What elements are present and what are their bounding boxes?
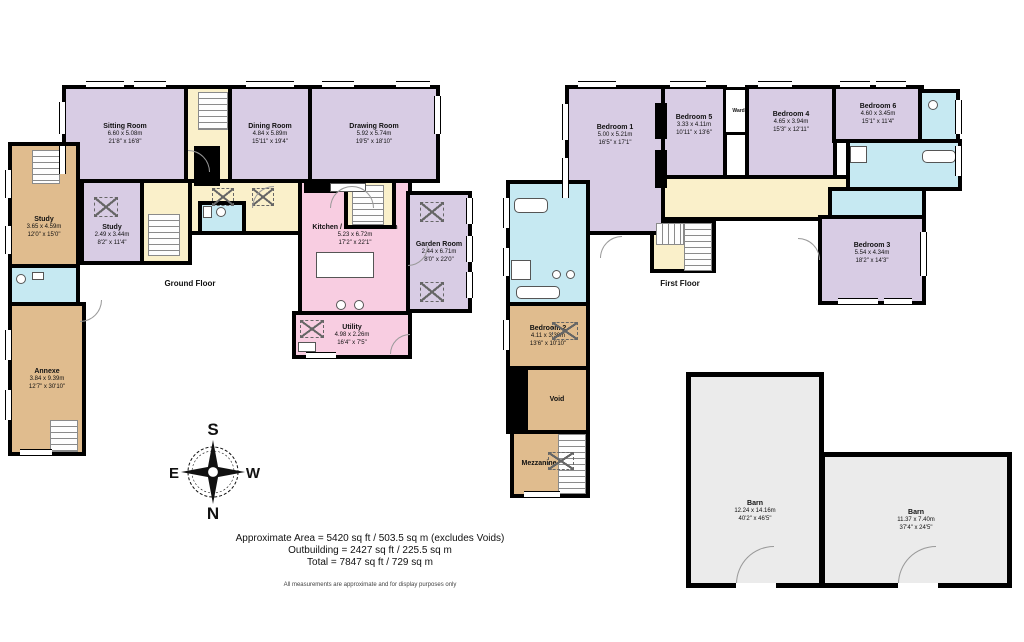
sink-fixture: [566, 270, 575, 279]
room-dimensions-metric: 12.24 x 14.16m: [734, 508, 775, 516]
door-arc: [600, 236, 622, 258]
room-dimensions-metric: 5.54 x 4.34m: [855, 250, 890, 258]
room-dimensions-metric: 11.37 x 7.40m: [897, 517, 935, 525]
chimney-block: [655, 103, 667, 139]
toilet-fixture: [216, 207, 226, 217]
room-dimensions-metric: 4.84 x 5.89m: [253, 131, 288, 139]
room-label: Barn: [747, 499, 763, 508]
room-dimensions-imperial: 12'0" x 15'0": [28, 232, 61, 240]
disclaimer: All measurements are approximate and for…: [225, 582, 515, 588]
room-bedroom-5: Bedroom 5 3.33 x 4.11m 10'11" x 13'6": [661, 85, 727, 179]
room-dimensions-metric: 6.60 x 5.08m: [108, 131, 143, 139]
stairs: [684, 223, 712, 271]
barn-door-gap: [898, 583, 938, 590]
window: [246, 81, 294, 88]
rooflight-marker: [94, 197, 118, 217]
window: [59, 146, 66, 174]
room-dimensions-metric: 3.33 x 4.11m: [677, 122, 711, 130]
window: [466, 198, 473, 224]
window: [955, 146, 962, 176]
room-dimensions-imperial: 15'11" x 19'4": [252, 139, 288, 147]
sink-fixture: [354, 300, 364, 310]
label-ground-floor: Ground Floor: [130, 279, 250, 288]
toilet-fixture: [928, 100, 938, 110]
sink-fixture: [298, 342, 316, 352]
compass-east-label: E: [169, 465, 179, 482]
window: [578, 81, 616, 88]
room-label: Sitting Room: [103, 122, 147, 131]
sink-fixture: [203, 206, 212, 218]
room-dimensions-imperial: 16'4" x 7'5": [337, 340, 367, 348]
room-dining-room: Dining Room 4.84 x 5.89m 15'11" x 19'4": [228, 85, 312, 183]
window: [434, 96, 441, 134]
room-label: Barn: [908, 508, 924, 517]
room-label: Bedroom 3: [854, 241, 891, 250]
room-dimensions-imperial: 15'3" x 12'11": [773, 127, 809, 135]
window: [466, 236, 473, 262]
room-label: Bedroom 1: [597, 123, 634, 132]
area-line-2: Outbuilding = 2427 sq ft / 225.5 sq m: [225, 545, 515, 557]
window: [5, 330, 12, 360]
room-label: Utility: [342, 323, 361, 332]
window: [5, 226, 12, 254]
stairs: [148, 214, 180, 256]
window: [503, 248, 510, 276]
room-dimensions-metric: 3.65 x 4.59m: [27, 224, 62, 232]
room-dimensions-imperial: 16'5" x 17'1": [599, 140, 632, 148]
shower-fixture: [850, 146, 867, 163]
room-dimensions-metric: 4.98 x 2.26m: [335, 332, 370, 340]
sink-fixture: [552, 270, 561, 279]
room-label: Bedroom 4: [773, 110, 810, 119]
compass-rose: S N E W: [165, 418, 261, 522]
room-dimensions-metric: 2.49 x 3.44m: [95, 232, 130, 240]
window: [838, 298, 878, 305]
room-dimensions-imperial: 8'0" x 22'0": [424, 257, 454, 265]
rooflight-marker: [212, 188, 234, 206]
room-dimensions-metric: 4.65 x 3.94m: [774, 119, 809, 127]
room-dimensions-imperial: 8'2" x 11'4": [97, 240, 126, 248]
room-dimensions-imperial: 18'2" x 14'3": [856, 258, 889, 266]
sink-fixture: [336, 300, 346, 310]
bathroom-annexe: [8, 264, 80, 306]
room-bedroom-3: Bedroom 3 5.54 x 4.34m 18'2" x 14'3": [818, 215, 926, 305]
room-dimensions-metric: 5.23 x 6.72m: [338, 232, 373, 240]
window: [5, 170, 12, 198]
toilet-fixture: [16, 274, 26, 284]
compass-hub: [208, 467, 219, 478]
room-dimensions-imperial: 40'2" x 46'5": [739, 516, 772, 524]
room-dimensions-metric: 3.84 x 9.39m: [30, 376, 65, 384]
window: [503, 320, 510, 350]
window: [20, 449, 52, 456]
window: [396, 81, 430, 88]
window: [322, 81, 354, 88]
window: [840, 81, 870, 88]
window: [884, 298, 912, 305]
room-label: Study: [102, 223, 121, 232]
room-dimensions-imperial: 19'5" x 18'10": [356, 139, 392, 147]
room-dimensions-metric: 5.92 x 5.74m: [357, 131, 392, 139]
room-dimensions-imperial: 13'6" x 10'10": [530, 341, 566, 349]
stairs: [656, 223, 684, 245]
kitchen-island: [316, 252, 374, 278]
window: [86, 81, 124, 88]
room-dimensions-imperial: 15'1" x 11'4": [862, 119, 894, 127]
barn-door-gap: [736, 583, 776, 590]
floorplan: Sitting Room 6.60 x 5.08m 21'8" x 16'8" …: [0, 0, 1024, 642]
compass-north-label: N: [207, 504, 219, 522]
window: [670, 81, 706, 88]
window: [562, 158, 569, 198]
window: [306, 352, 336, 359]
shower-fixture: [511, 260, 531, 280]
window: [59, 102, 66, 134]
rooflight-marker: [420, 282, 444, 302]
rooflight-marker: [552, 322, 578, 340]
label-first-floor: First Floor: [620, 279, 740, 288]
room-label: Bedroom 6: [860, 102, 897, 111]
room-bedroom-6: Bedroom 6 4.60 x 3.45m 15'1" x 11'4": [832, 85, 924, 143]
rooflight-marker: [300, 320, 324, 338]
compass-west-label: W: [246, 465, 261, 482]
room-bedroom-4: Bedroom 4 4.65 x 3.94m 15'3" x 12'11": [745, 85, 837, 179]
room-sitting-room: Sitting Room 6.60 x 5.08m 21'8" x 16'8": [62, 85, 188, 183]
window: [524, 491, 560, 498]
window: [5, 390, 12, 420]
compass-south-label: S: [207, 420, 218, 439]
area-line-1: Approximate Area = 5420 sq ft / 503.5 sq…: [225, 533, 515, 545]
stairs: [32, 150, 60, 184]
room-study: Study 2.49 x 3.44m 8'2" x 11'4": [80, 179, 144, 265]
room-label: Study: [34, 215, 53, 224]
room-dimensions-imperial: 10'11" x 13'6": [676, 130, 712, 138]
window: [562, 104, 569, 140]
room-label: Drawing Room: [349, 122, 398, 131]
room-label: Void: [550, 395, 565, 404]
door-arc: [798, 238, 820, 260]
rooflight-marker: [548, 452, 574, 470]
area-summary: Approximate Area = 5420 sq ft / 503.5 sq…: [225, 533, 515, 588]
room-void: Void: [524, 366, 590, 434]
window: [920, 232, 927, 276]
chimney-block: [655, 150, 667, 188]
room-dimensions-metric: 4.60 x 3.45m: [861, 111, 896, 119]
window: [955, 100, 962, 134]
door-arc: [80, 300, 102, 322]
room-dimensions-metric: 5.00 x 5.21m: [598, 132, 633, 140]
window: [503, 198, 510, 228]
room-dimensions-imperial: 12'7" x 30'10": [29, 384, 65, 392]
stairs: [50, 420, 78, 452]
room-drawing-room: Drawing Room 5.92 x 5.74m 19'5" x 18'10": [308, 85, 440, 183]
room-dimensions-imperial: 17'2" x 22'1": [339, 240, 372, 248]
room-label: Dining Room: [248, 122, 292, 131]
room-dimensions-imperial: 37'4" x 24'5": [900, 525, 933, 533]
bathtub-fixture: [514, 198, 548, 213]
area-line-3: Total = 7847 sq ft / 729 sq m: [225, 557, 515, 569]
stairs: [198, 92, 228, 130]
room-label: Annexe: [34, 367, 59, 376]
rooflight-marker: [420, 202, 444, 222]
window: [876, 81, 906, 88]
bathtub-fixture: [922, 150, 956, 163]
wall-block: [506, 366, 526, 434]
window: [466, 272, 473, 298]
window: [134, 81, 166, 88]
room-label: Bedroom 5: [676, 113, 713, 122]
sink-fixture: [32, 272, 44, 280]
window: [758, 81, 792, 88]
bathtub-fixture: [516, 286, 560, 299]
room-dimensions-imperial: 21'8" x 16'8": [109, 139, 142, 147]
